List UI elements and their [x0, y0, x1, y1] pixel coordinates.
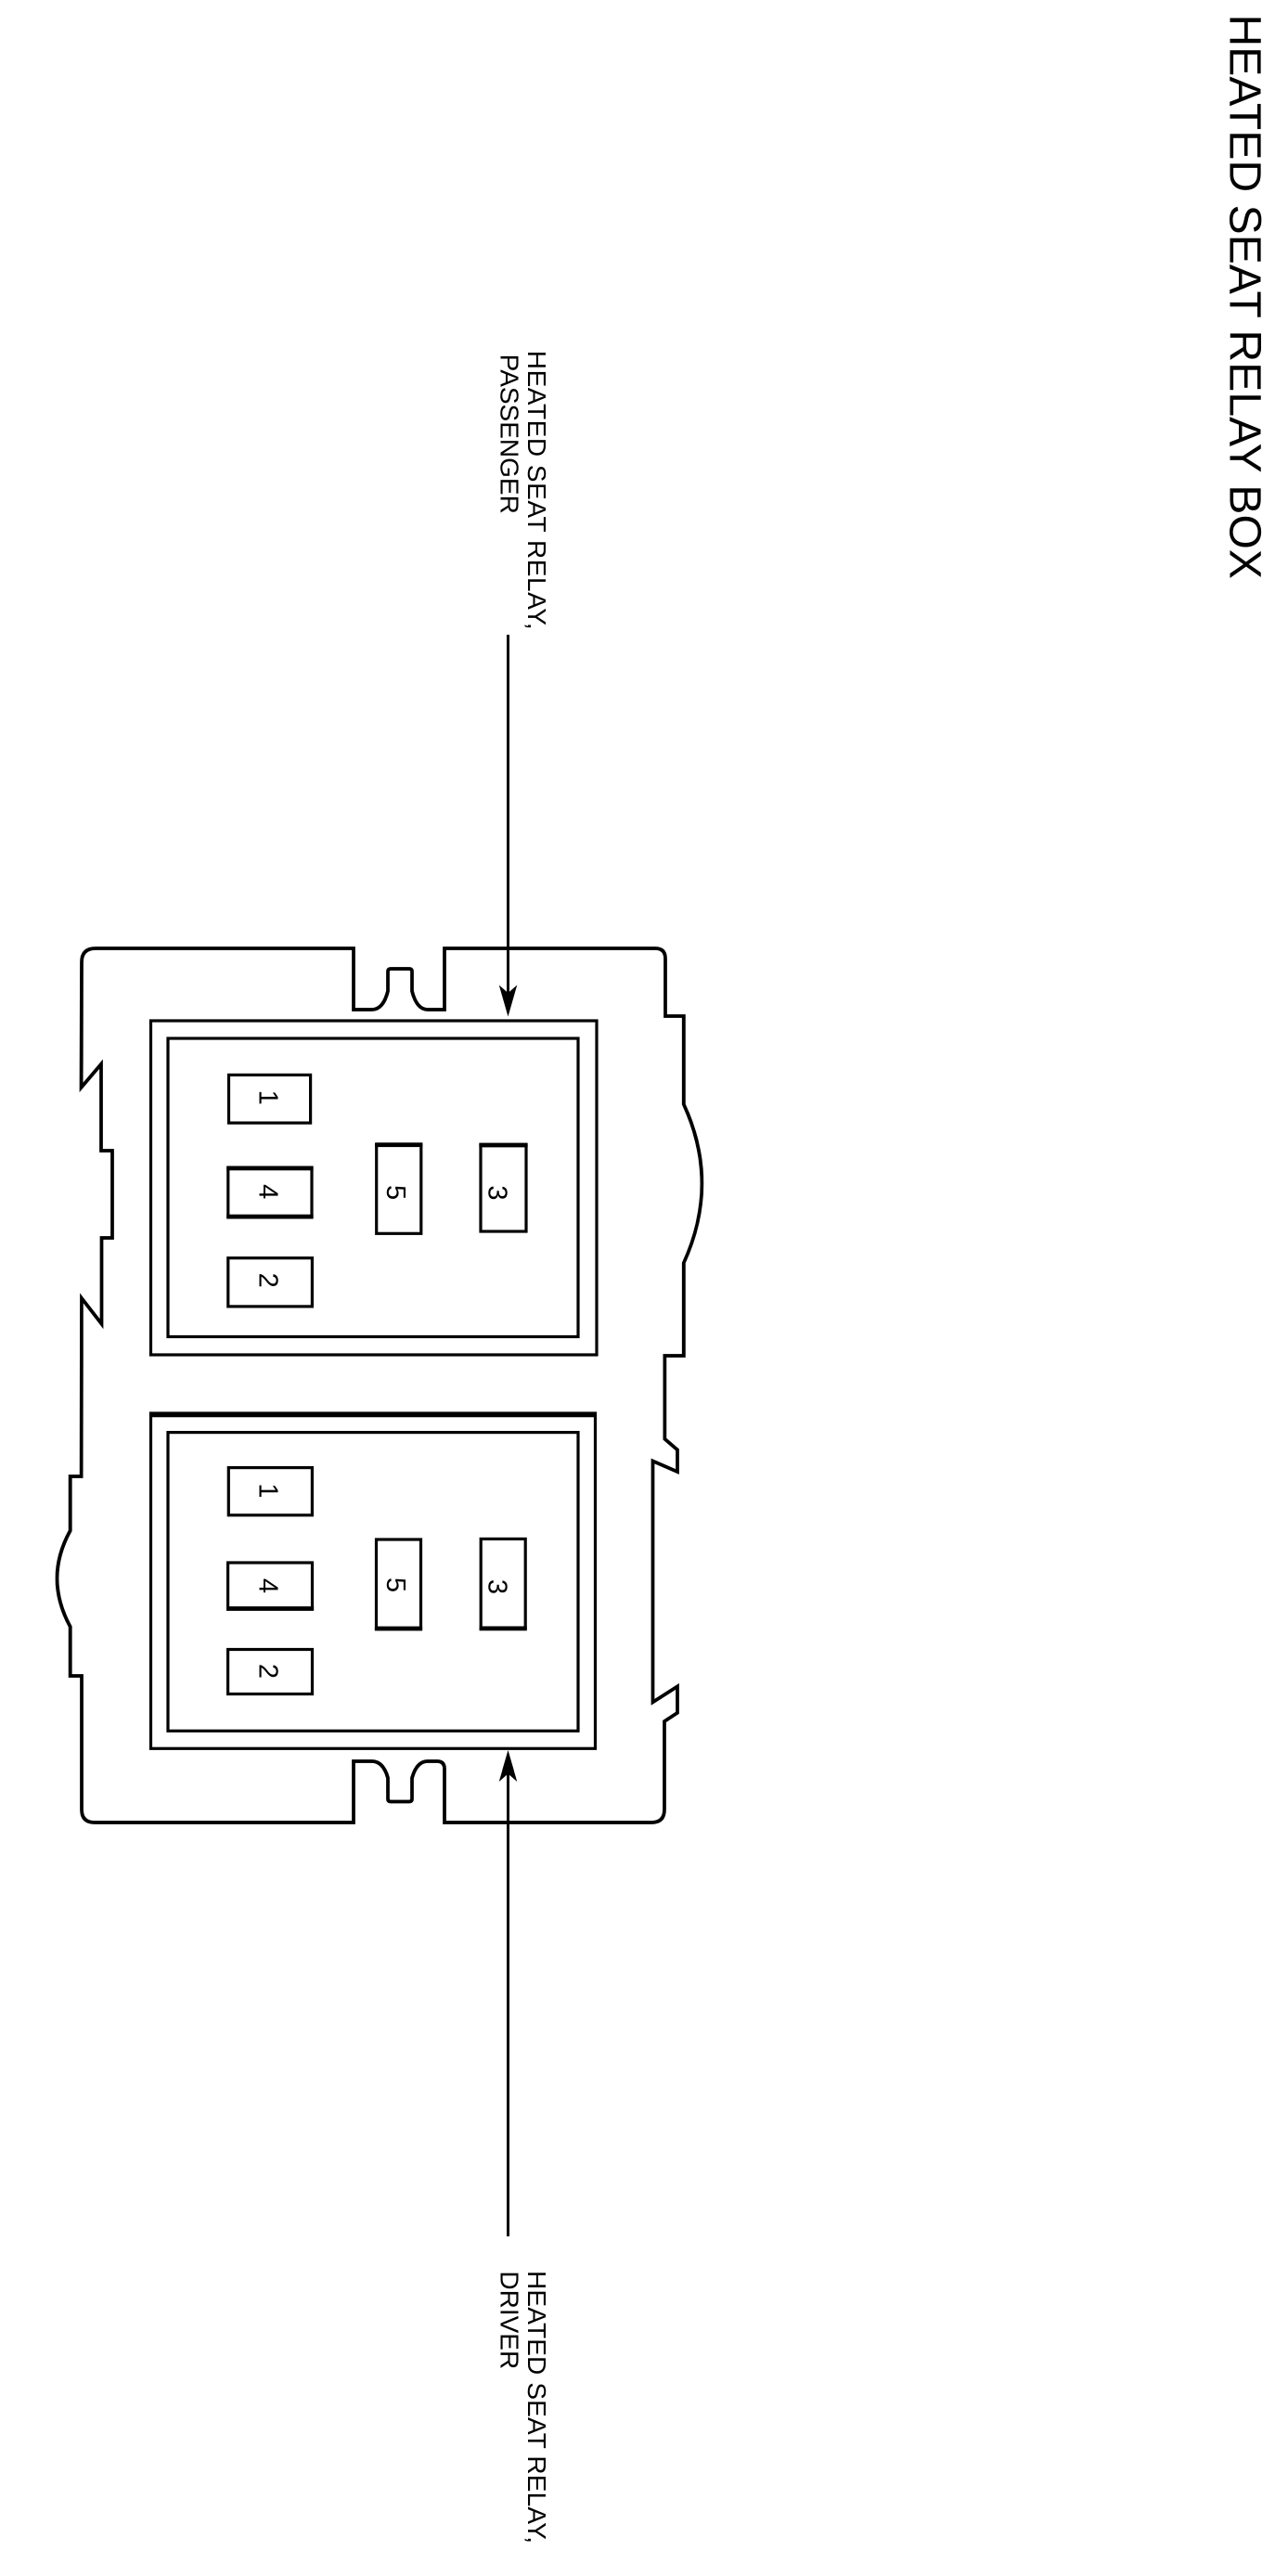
svg-text:4: 4: [253, 1578, 283, 1593]
svg-text:DRIVER: DRIVER: [496, 2271, 524, 2369]
svg-text:5: 5: [380, 1185, 410, 1200]
svg-text:PASSENGER: PASSENGER: [496, 354, 524, 514]
svg-text:HEATED SEAT RELAY,: HEATED SEAT RELAY,: [522, 2271, 551, 2544]
svg-text:5: 5: [380, 1578, 410, 1592]
svg-text:3: 3: [483, 1579, 512, 1594]
svg-text:3: 3: [483, 1185, 512, 1200]
svg-text:HEATED SEAT RELAY BOX: HEATED SEAT RELAY BOX: [1220, 15, 1269, 580]
svg-text:2: 2: [253, 1273, 283, 1288]
svg-text:4: 4: [253, 1184, 283, 1199]
svg-text:1: 1: [253, 1090, 283, 1105]
svg-text:1: 1: [253, 1483, 283, 1498]
svg-text:HEATED SEAT RELAY,: HEATED SEAT RELAY,: [522, 351, 551, 630]
svg-text:2: 2: [253, 1664, 283, 1679]
